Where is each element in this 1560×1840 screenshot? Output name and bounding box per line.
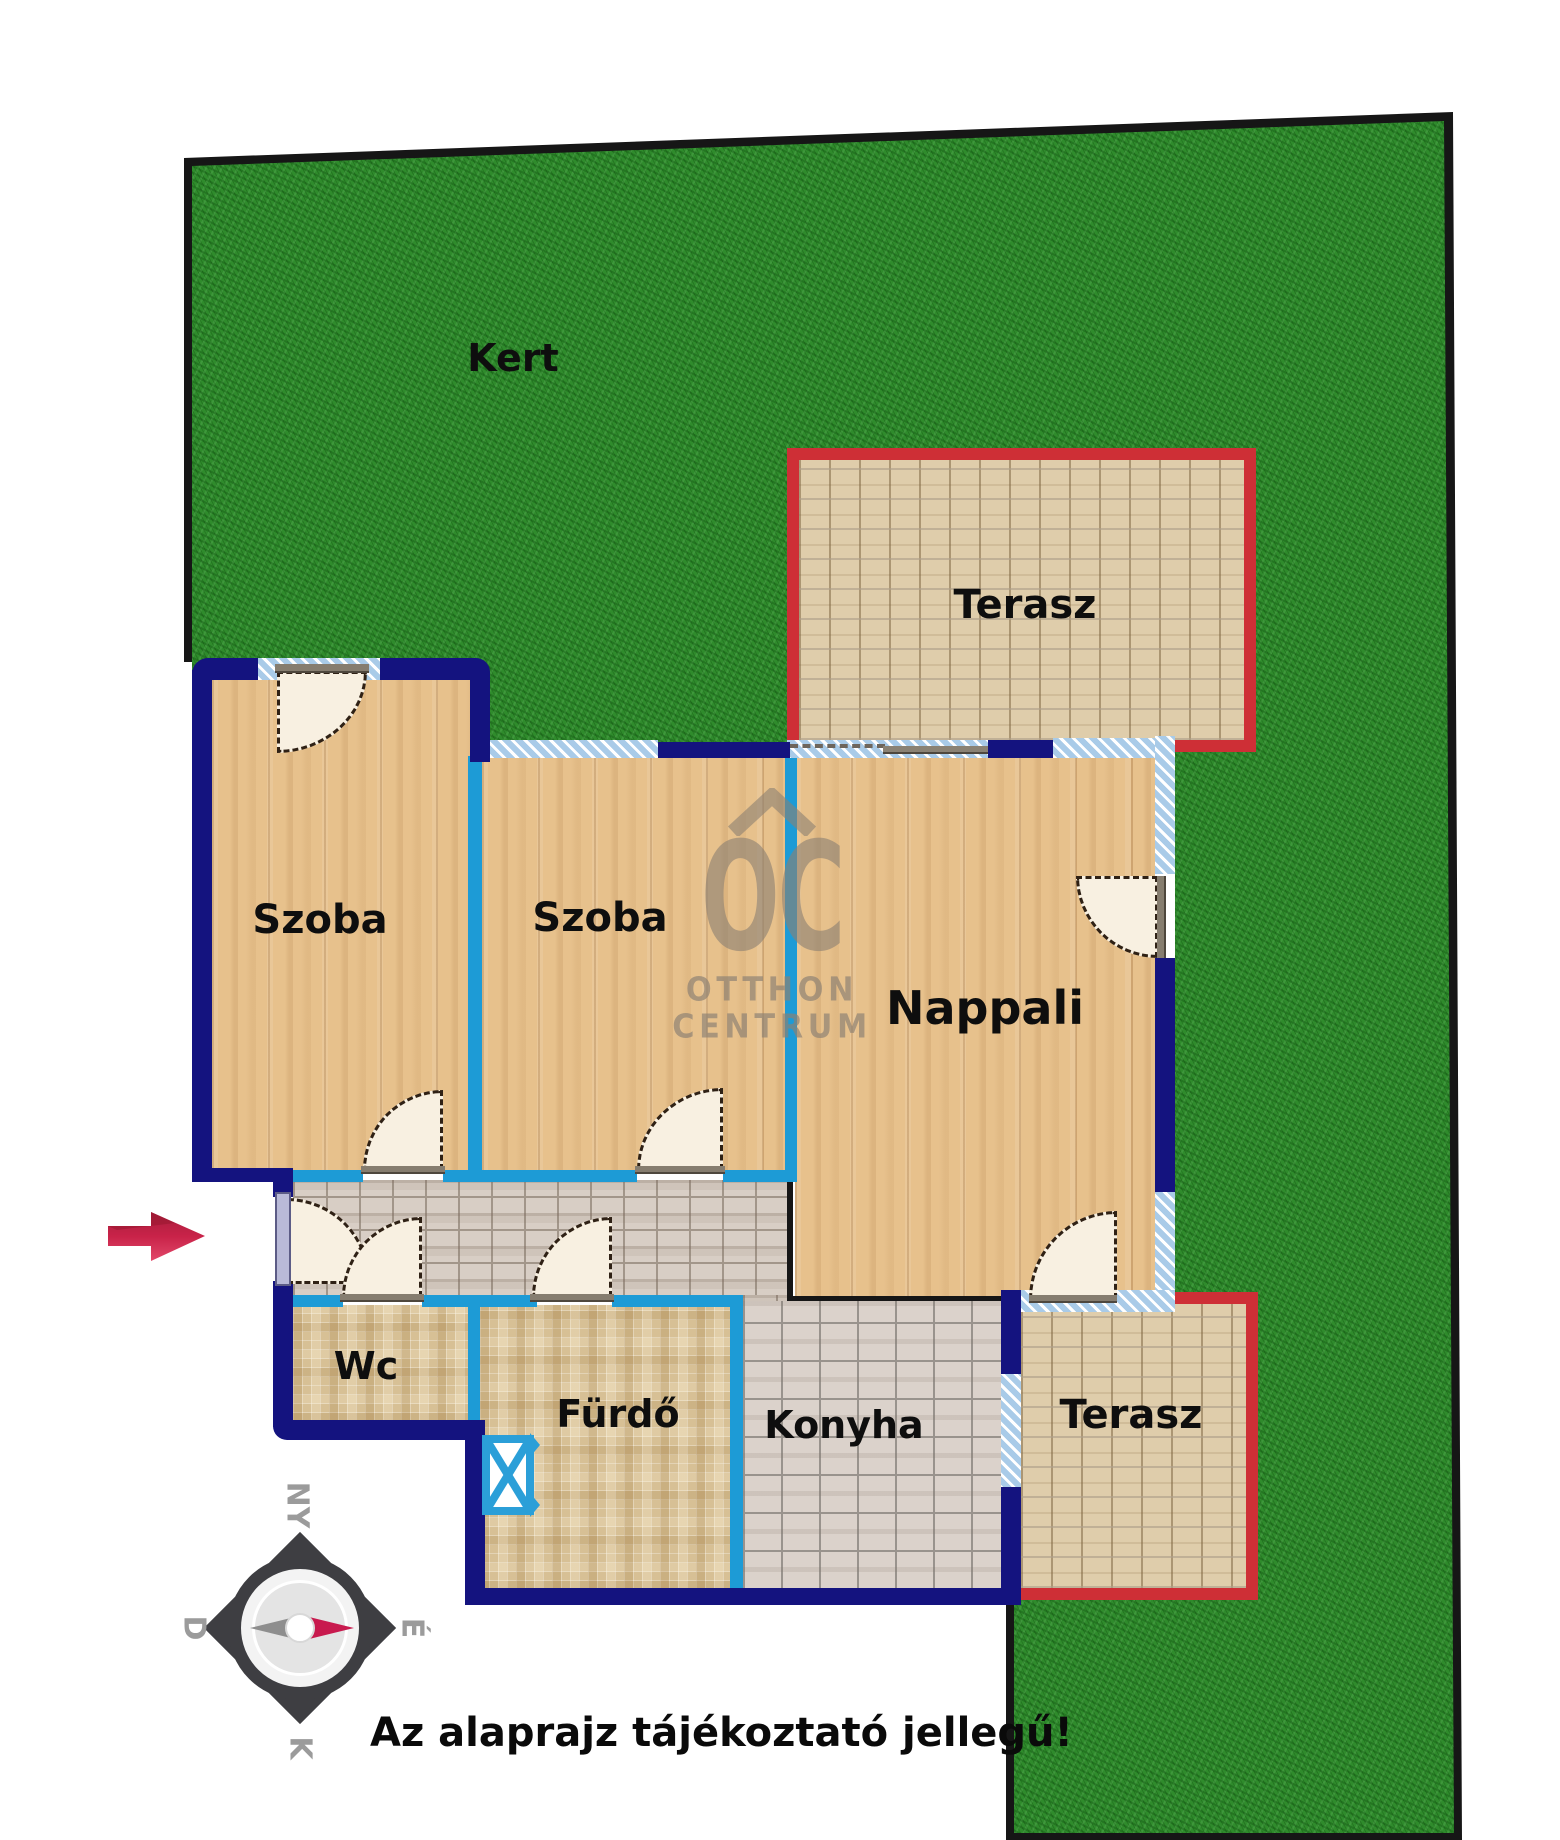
watermark-line1: OTTHON xyxy=(686,970,858,1009)
wall-bath-kitchen xyxy=(730,1305,743,1590)
label-room-middle: Szoba xyxy=(532,895,667,941)
terrace-bottom xyxy=(1009,1292,1258,1600)
wall-west-step xyxy=(192,1168,293,1182)
kitchen-living-boundary xyxy=(790,1296,1003,1301)
watermark-line2: CENTRUM xyxy=(672,1007,872,1046)
compass-label-k: K xyxy=(283,1736,318,1759)
door-leaf-room-middle xyxy=(635,1166,725,1174)
label-living-room: Nappali xyxy=(886,981,1084,1035)
compass-hub xyxy=(285,1613,315,1643)
door-leaf-entrance xyxy=(275,1192,291,1286)
door-leaf-bathroom xyxy=(530,1294,614,1302)
wall-living-top xyxy=(988,740,1053,758)
wall-hall-bottom-3 xyxy=(612,1295,743,1307)
wall-terrace-west-lower xyxy=(1001,1487,1021,1605)
wall-entry-lower xyxy=(273,1281,293,1427)
compass-label-e: É xyxy=(395,1618,430,1639)
wall-hall-top-1 xyxy=(293,1170,363,1182)
label-kitchen: Konyha xyxy=(764,1403,923,1447)
wall-wc-south xyxy=(273,1420,485,1440)
label-terrace-top: Terasz xyxy=(954,582,1097,628)
label-bathroom: Fürdő xyxy=(556,1392,679,1436)
label-room-left: Szoba xyxy=(252,897,387,943)
compass-label-ny: NY xyxy=(280,1482,315,1529)
label-garden: Kert xyxy=(467,336,558,380)
wall-living-east-mid xyxy=(1155,955,1175,1192)
wall-terrace-west-upper xyxy=(1001,1312,1021,1374)
sliding-door-leaf xyxy=(883,746,988,754)
label-wc: Wc xyxy=(334,1344,398,1388)
door-leaf-wc xyxy=(340,1294,424,1302)
wall-room2-top xyxy=(658,742,790,758)
window-room-middle xyxy=(490,740,658,758)
hall-living-boundary xyxy=(787,1182,793,1301)
wall-hall-top-2 xyxy=(443,1170,637,1182)
wall-south xyxy=(465,1588,1021,1605)
entrance-arrow-icon xyxy=(105,1205,209,1265)
door-leaf-room-left xyxy=(361,1166,445,1174)
watermark-logo: OC xyxy=(701,811,843,985)
wall-hall-bottom-1 xyxy=(293,1295,343,1307)
door-leaf-living-east xyxy=(1157,876,1166,958)
label-terrace-bottom: Terasz xyxy=(1060,1392,1203,1438)
window-living-east-upper xyxy=(1155,736,1175,878)
sliding-door-track xyxy=(790,744,885,748)
wall-wc-bath xyxy=(468,1305,480,1422)
compass-label-d: D xyxy=(177,1616,212,1641)
wall-room1-room2 xyxy=(468,756,482,1172)
wall-west xyxy=(192,670,212,1182)
wall-hall-top-3 xyxy=(723,1170,790,1182)
door-leaf-room-left-garden xyxy=(275,664,369,673)
shower-icon xyxy=(482,1433,540,1517)
wall-step-column xyxy=(470,672,490,762)
floor-plan: OC OTTHON CENTRUM Kert Terasz Szoba Szob… xyxy=(0,0,1560,1840)
window-living-top-right xyxy=(1053,738,1157,758)
door-leaf-living-terrace xyxy=(1029,1295,1117,1303)
disclaimer-text: Az alaprajz tájékoztató jellegű! xyxy=(370,1710,1073,1756)
window-kitchen-terrace xyxy=(1001,1372,1021,1489)
wall-living-south-corner xyxy=(1001,1290,1021,1312)
